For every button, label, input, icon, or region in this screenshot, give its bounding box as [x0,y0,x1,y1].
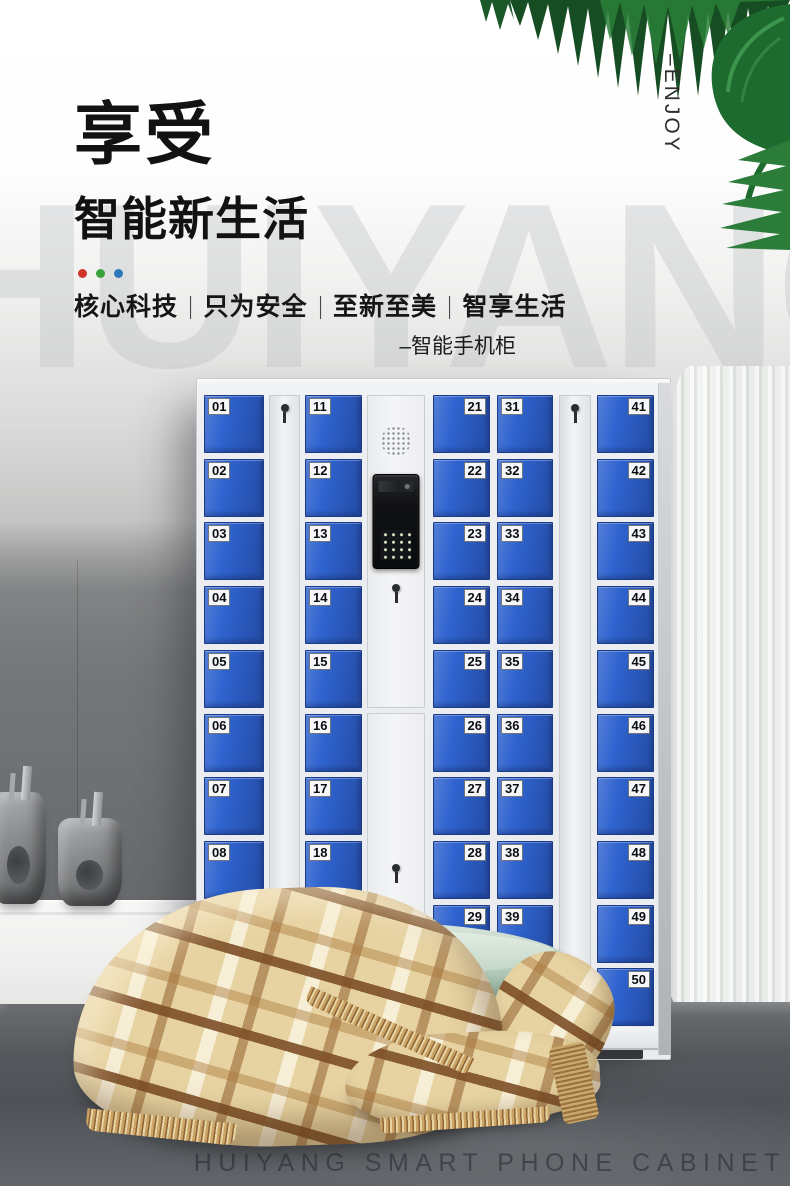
locker-door: 32 [497,459,553,517]
door-number-label: 41 [628,398,650,415]
door-number-label: 03 [208,525,230,542]
door-number-label: 25 [464,653,486,670]
door-number-label: 06 [208,717,230,734]
bottom-caption: HUIYANG SMART PHONE CABINET [194,1149,786,1178]
locker-door: 27 [433,777,490,835]
door-column-5: 41424344454647484950 [597,395,654,1026]
locker-door: 46 [597,714,654,772]
keyhole-icon [392,864,400,872]
door-number-label: 24 [464,589,486,606]
tagline-divider: | [448,292,452,321]
locker-door: 02 [204,459,264,517]
door-number-label: 38 [501,844,523,861]
door-number-label: 48 [628,844,650,861]
locker-door: 21 [433,395,490,453]
door-number-label: 46 [628,717,650,734]
door-number-label: 26 [464,717,486,734]
door-number-label: 43 [628,525,650,542]
door-number-label: 22 [464,462,486,479]
tagline: 核心科技|只为安全|至新至美|智享生活 [74,287,516,323]
accent-dot [78,269,87,278]
speaker-grille-icon [381,426,411,456]
locker-door: 04 [204,586,264,644]
accent-dot [114,269,123,278]
door-number-label: 27 [464,780,486,797]
locker-door: 36 [497,714,553,772]
door-number-label: 37 [501,780,523,797]
door-number-label: 45 [628,653,650,670]
locker-door: 47 [597,777,654,835]
enjoy-vertical-label: –ENJOY [659,54,683,154]
locker-door: 31 [497,395,553,453]
stone-vase [0,792,46,904]
camera-slot-icon [379,481,414,492]
product-note: –智能手机柜 [74,330,516,360]
locker-door: 26 [433,714,490,772]
tagline-item: 核心科技 [74,293,178,321]
curtain [664,366,790,1018]
locker-door: 37 [497,777,553,835]
cabinet-foot [595,1050,643,1059]
locker-door: 14 [305,586,362,644]
door-number-label: 07 [208,780,230,797]
keyhole-icon [392,584,400,592]
hero-subtitle: 智能新生活 [74,183,516,249]
stone-vase [58,818,122,906]
door-number-label: 16 [309,717,331,734]
palm-leaves-decoration [480,0,790,250]
locker-door: 05 [204,650,264,708]
door-number-label: 33 [501,525,523,542]
locker-door: 48 [597,841,654,899]
door-number-label: 11 [309,398,331,415]
locker-door: 49 [597,905,654,963]
locker-door: 24 [433,586,490,644]
door-number-label: 34 [501,589,523,606]
locker-door: 34 [497,586,553,644]
door-number-label: 39 [501,908,523,925]
door-number-label: 50 [628,971,650,988]
tagline-item: 智享生活 [463,293,567,321]
locker-door: 06 [204,714,264,772]
door-number-label: 23 [464,525,486,542]
locker-door: 33 [497,522,553,580]
cabinet-side-face [658,383,671,1055]
locker-door: 22 [433,459,490,517]
door-number-label: 32 [501,462,523,479]
door-number-label: 31 [501,398,523,415]
door-number-label: 36 [501,717,523,734]
locker-door: 23 [433,522,490,580]
door-number-label: 47 [628,780,650,797]
locker-door: 13 [305,522,362,580]
door-number-label: 05 [208,653,230,670]
door-number-label: 04 [208,589,230,606]
locker-door: 11 [305,395,362,453]
locker-door: 03 [204,522,264,580]
door-number-label: 44 [628,589,650,606]
tagline-divider: | [318,292,322,321]
door-number-label: 21 [464,398,486,415]
door-column-4: 31323334353637383940 [497,395,553,1026]
door-number-label: 13 [309,525,331,542]
lock-column-2 [559,395,591,1026]
door-number-label: 12 [309,462,331,479]
door-number-label: 35 [501,653,523,670]
fern-frond-icon [480,0,514,30]
locker-door: 25 [433,650,490,708]
locker-door: 38 [497,841,553,899]
locker-door: 44 [597,586,654,644]
locker-door: 45 [597,650,654,708]
intercom-unit [373,474,420,569]
locker-door: 15 [305,650,362,708]
door-number-label: 01 [208,398,230,415]
door-number-label: 28 [464,844,486,861]
keyhole-icon [571,404,579,412]
door-number-label: 18 [309,844,331,861]
door-number-label: 49 [628,908,650,925]
locker-door: 01 [204,395,264,453]
door-number-label: 29 [464,908,486,925]
locker-door: 28 [433,841,490,899]
control-panel [367,395,425,708]
locker-door: 07 [204,777,264,835]
door-number-label: 17 [309,780,331,797]
locker-door: 35 [497,650,553,708]
door-number-label: 08 [208,844,230,861]
accent-dot [96,269,105,278]
locker-door: 42 [597,459,654,517]
hero-title: 享受 [74,100,516,171]
door-number-label: 14 [309,589,331,606]
locker-door: 17 [305,777,362,835]
locker-door: 43 [597,522,654,580]
door-number-label: 02 [208,462,230,479]
tagline-item: 只为安全 [204,293,308,321]
hero-text-block: 享受 智能新生活 核心科技|只为安全|至新至美|智享生活 –智能手机柜 [74,100,516,360]
locker-door: 41 [597,395,654,453]
keypad-icon [381,530,412,560]
palm-frond-icon [720,140,790,250]
tagline-divider: | [189,292,193,321]
tagline-item: 至新至美 [333,293,437,321]
locker-door: 16 [305,714,362,772]
door-number-label: 42 [628,462,650,479]
door-number-label: 15 [309,653,331,670]
accent-dots [78,269,516,279]
keyhole-icon [281,404,289,412]
locker-door: 12 [305,459,362,517]
scene: HUIYANG 享受 智能新生活 核心科技|只为安全|至新至美|智享生活 –智能… [0,0,790,1186]
